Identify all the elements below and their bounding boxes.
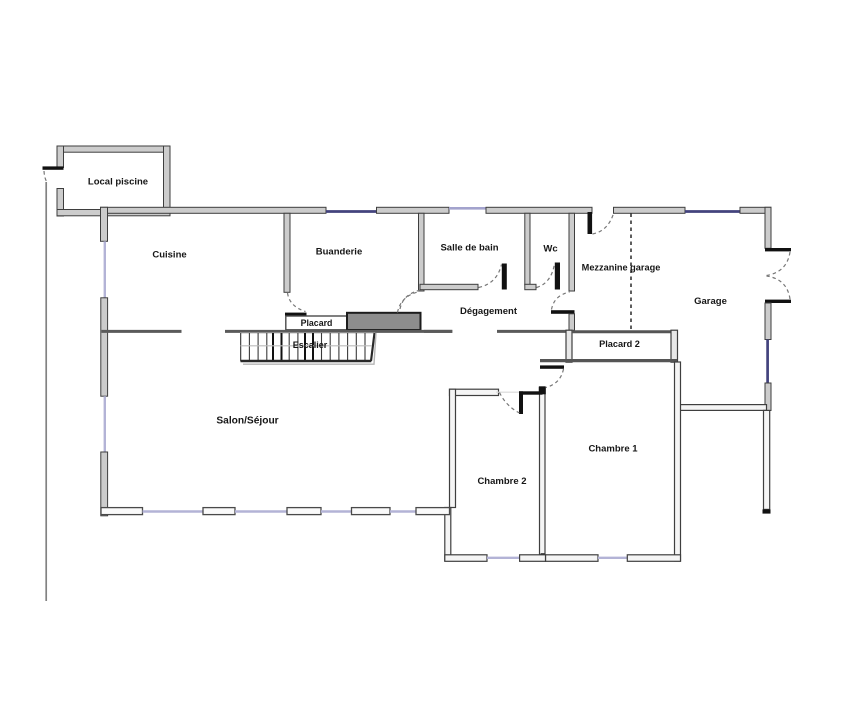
svg-text:Cuisine: Cuisine xyxy=(152,250,186,261)
svg-text:Chambre 2: Chambre 2 xyxy=(477,476,526,487)
svg-text:Placard: Placard xyxy=(301,318,333,328)
svg-text:Buanderie: Buanderie xyxy=(316,247,362,258)
svg-text:Placard 2: Placard 2 xyxy=(599,339,640,349)
svg-text:Chambre 1: Chambre 1 xyxy=(588,443,638,454)
svg-text:Escalier: Escalier xyxy=(293,340,328,350)
svg-text:Wc: Wc xyxy=(543,243,557,254)
svg-text:Salon/Séjour: Salon/Séjour xyxy=(216,415,278,426)
svg-text:Mezzanine garage: Mezzanine garage xyxy=(582,262,661,272)
svg-text:Dégagement: Dégagement xyxy=(460,306,518,317)
svg-text:Salle de bain: Salle de bain xyxy=(440,242,498,253)
svg-text:Garage: Garage xyxy=(694,296,727,307)
svg-text:Local piscine: Local piscine xyxy=(88,177,148,188)
